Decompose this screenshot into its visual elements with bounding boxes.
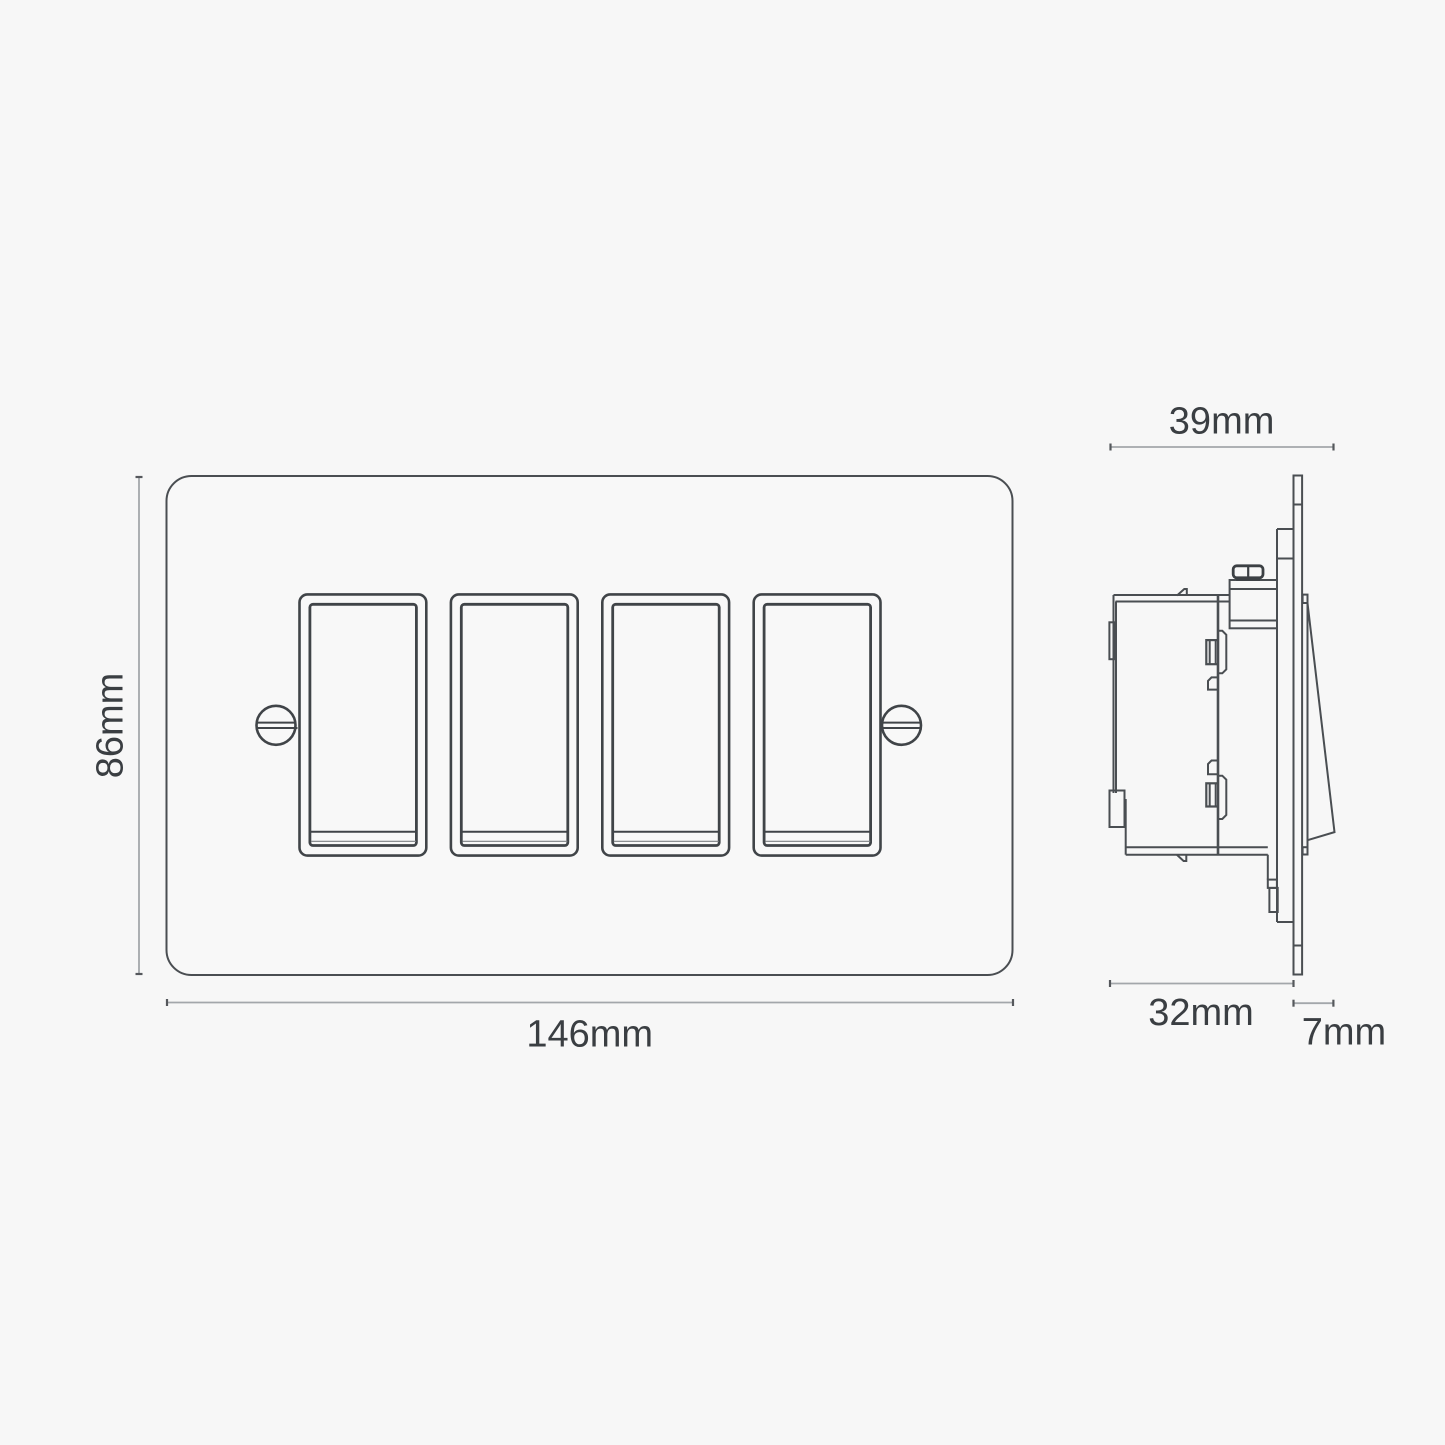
svg-text:7mm: 7mm	[1302, 1012, 1386, 1054]
svg-text:146mm: 146mm	[526, 1014, 653, 1056]
svg-text:32mm: 32mm	[1148, 992, 1254, 1034]
svg-text:39mm: 39mm	[1169, 401, 1275, 443]
svg-text:86mm: 86mm	[90, 673, 132, 779]
